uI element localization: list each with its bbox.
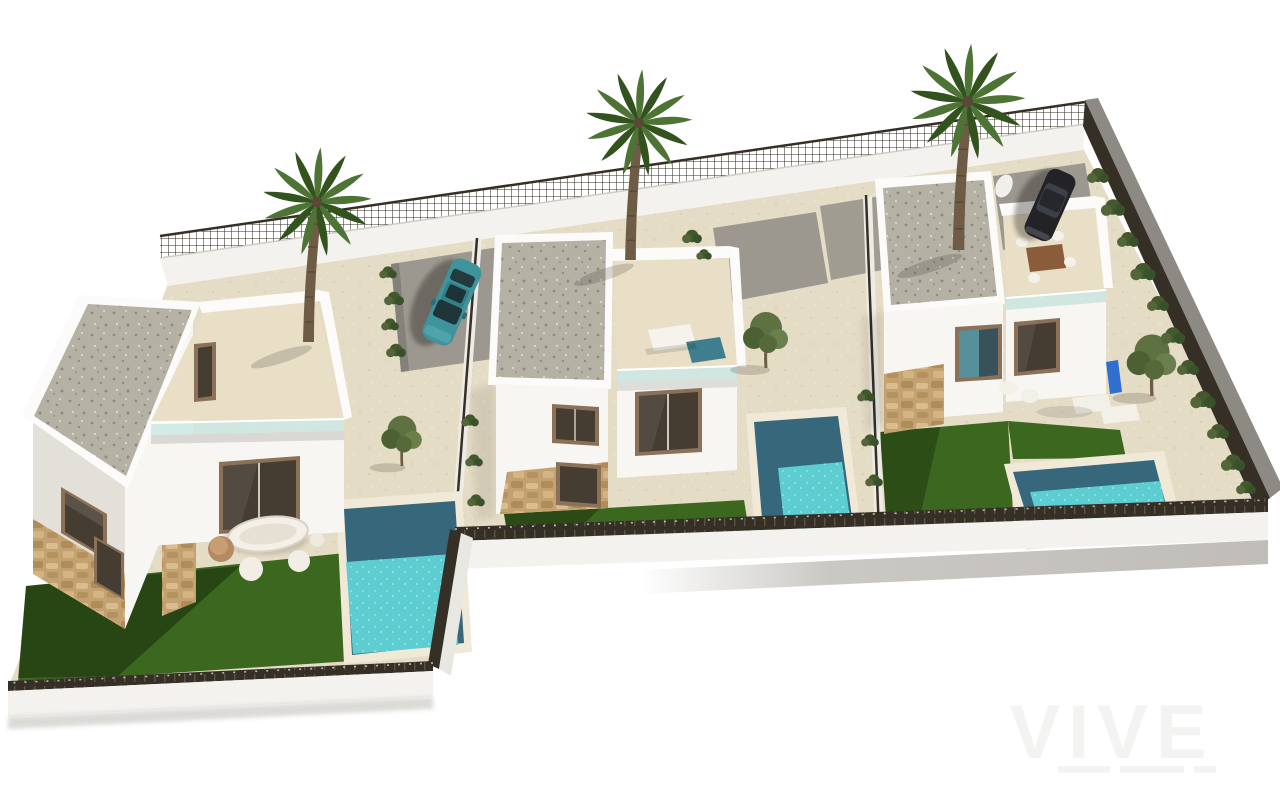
villa-right-roof-gravel xyxy=(883,180,997,305)
villa-right xyxy=(862,171,1140,434)
architectural-render: VIVE xyxy=(0,0,1280,800)
watermark-tagline-bar xyxy=(1120,766,1184,773)
villa-middle-window-lower xyxy=(556,462,601,508)
villa-right-stone-band xyxy=(884,364,944,434)
furniture-shadow xyxy=(1037,406,1093,418)
dining-table xyxy=(1026,244,1066,272)
villa-middle-roof-gravel xyxy=(496,240,606,380)
patio-chair xyxy=(1021,389,1039,403)
dining-chair xyxy=(1064,257,1076,267)
watermark-tagline-bar xyxy=(1058,766,1110,773)
pouf-white-3 xyxy=(310,533,324,547)
villa-right-window-pool-reflection xyxy=(955,324,1002,382)
patio-chair xyxy=(999,381,1017,395)
watermark: VIVE xyxy=(1009,690,1216,775)
villa-right-window-large xyxy=(1014,318,1060,376)
villas-scene: VIVE xyxy=(0,0,1280,800)
watermark-logo-text: VIVE xyxy=(1009,690,1214,775)
villa-middle-window-upper xyxy=(552,404,599,446)
pouf-white-1 xyxy=(239,557,263,581)
dining-chair xyxy=(1028,273,1040,283)
pouf-white-2 xyxy=(288,550,310,572)
villa-middle-sliding-door xyxy=(635,388,702,456)
villa-left-terrace-window xyxy=(194,342,216,402)
pouf-brown-top xyxy=(210,537,228,555)
watermark-tagline-bar xyxy=(1194,766,1216,773)
